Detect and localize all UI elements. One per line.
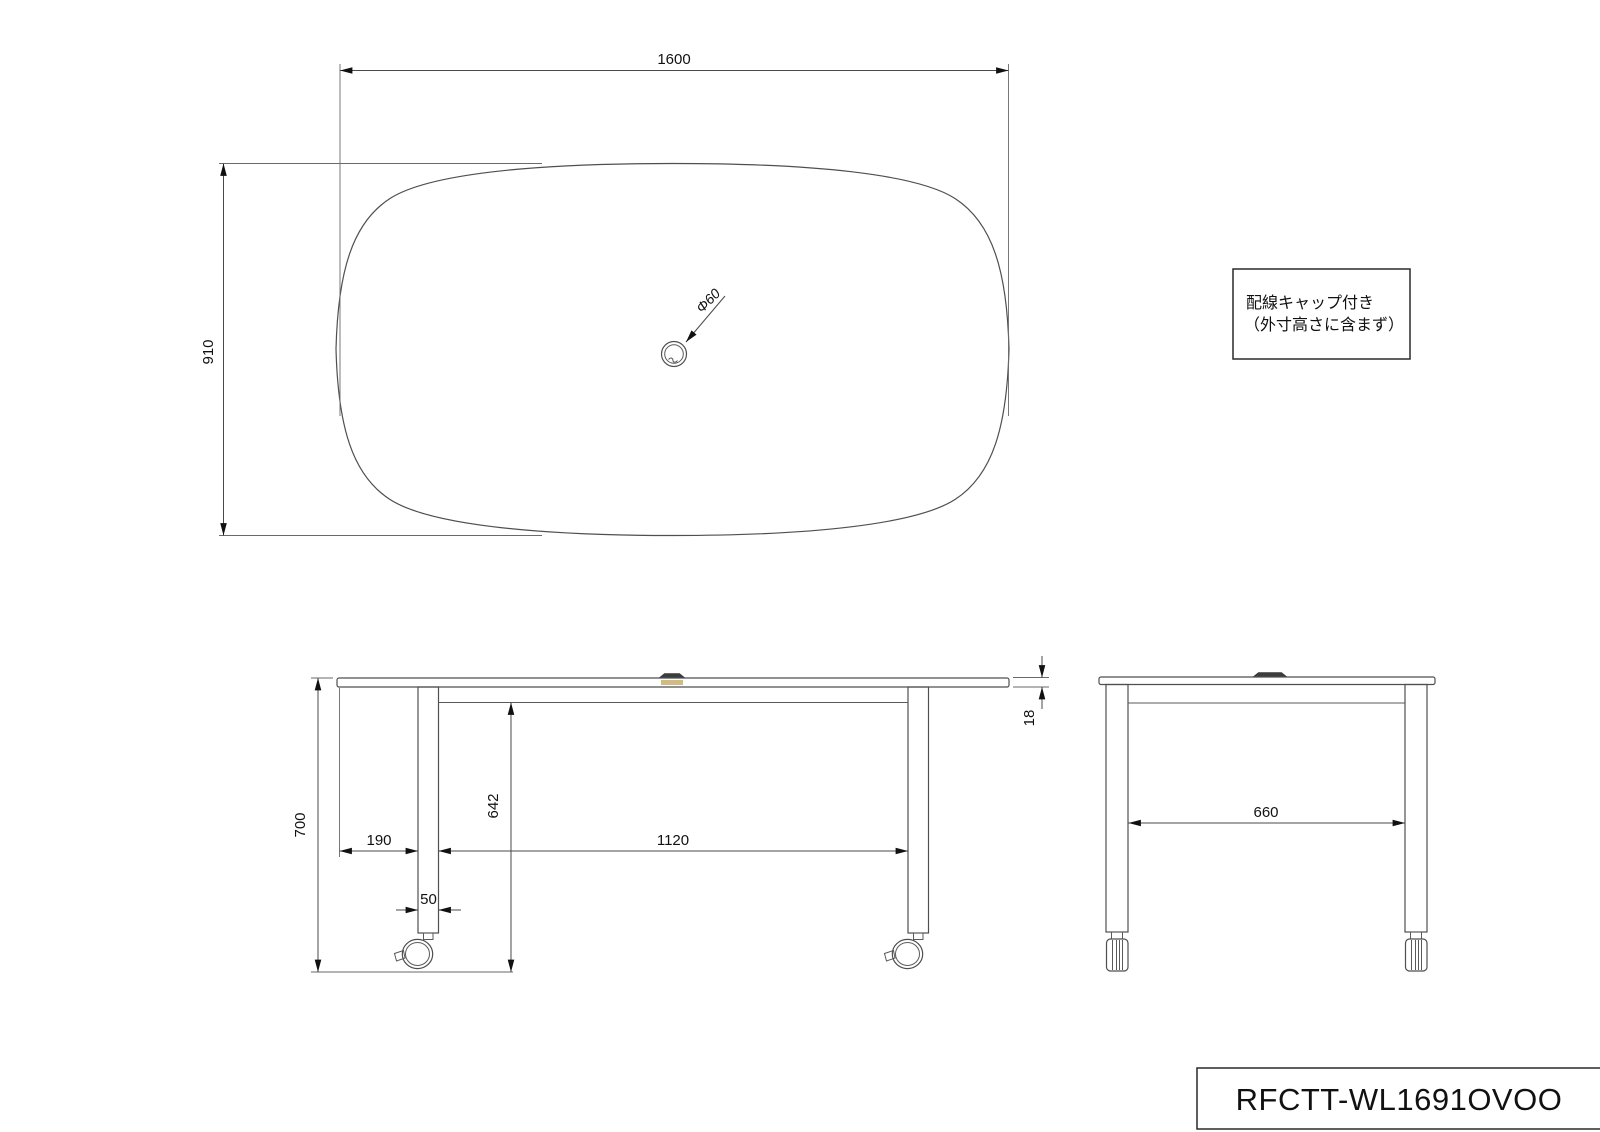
depth-dim-label: 910: [200, 339, 217, 364]
caster-stem: [1112, 932, 1123, 939]
width-dim-label: 1600: [657, 51, 690, 68]
height-dim-label: 700: [292, 812, 309, 837]
caster-stem: [914, 933, 924, 940]
note-box: 配線キャップ付き （外寸高さに含まず）: [1233, 269, 1410, 359]
caster-stem: [424, 933, 434, 940]
note-line-2: （外寸高さに含まず）: [1244, 316, 1404, 334]
side-left-caster: [1107, 932, 1129, 971]
front-view: 700 190 1120 642 50 18: [292, 656, 1049, 972]
caster-wheel-rim: [896, 943, 920, 966]
side-right-caster: [1406, 932, 1428, 971]
caster-stem: [1411, 932, 1422, 939]
leg-pitch-dim-label: 1120: [657, 832, 689, 849]
drawing-page: Φ60 1600 910 配線キャップ付き （外寸高さに含まず）: [0, 0, 1600, 1132]
tabletop-side: [1099, 677, 1435, 685]
cable-hole-notch: [669, 358, 678, 362]
side-right-leg: [1405, 685, 1427, 933]
front-right-leg: [908, 687, 929, 933]
front-right-caster: [885, 933, 924, 969]
overhang-dim-label: 190: [366, 832, 391, 849]
caster-wheel-block: [1107, 939, 1129, 971]
caster-wheel-block: [1406, 939, 1428, 971]
wiring-cap-side: [1253, 673, 1287, 678]
caster-wheel: [892, 939, 922, 968]
hole-dim-label: Φ60: [693, 285, 724, 316]
thickness-dim-label: 18: [1021, 710, 1038, 727]
model-number: RFCTT-WL1691OVOO: [1236, 1082, 1563, 1117]
side-view: 660: [1099, 673, 1435, 972]
title-block: RFCTT-WL1691OVOO: [1197, 1068, 1600, 1129]
caster-wheel: [402, 939, 432, 968]
clearance-dim-label: 642: [485, 793, 502, 818]
caster-wheel-rim: [406, 943, 430, 966]
cable-hole-outer: [662, 342, 687, 367]
side-left-leg: [1106, 685, 1128, 933]
cable-hole-inner: [665, 345, 684, 364]
leg-width-dim-label: 50: [420, 891, 437, 908]
cad-drawing: Φ60 1600 910 配線キャップ付き （外寸高さに含まず）: [0, 0, 1600, 1132]
note-box-border: [1233, 269, 1410, 359]
wiring-cap-front: [659, 674, 685, 679]
top-view: Φ60 1600 910: [200, 51, 1009, 536]
depth-pitch-dim-label: 660: [1253, 804, 1278, 821]
note-line-1: 配線キャップ付き: [1246, 294, 1374, 312]
cap-underside: [661, 680, 683, 685]
tabletop-outline: [336, 164, 1009, 536]
front-left-caster: [395, 933, 434, 969]
